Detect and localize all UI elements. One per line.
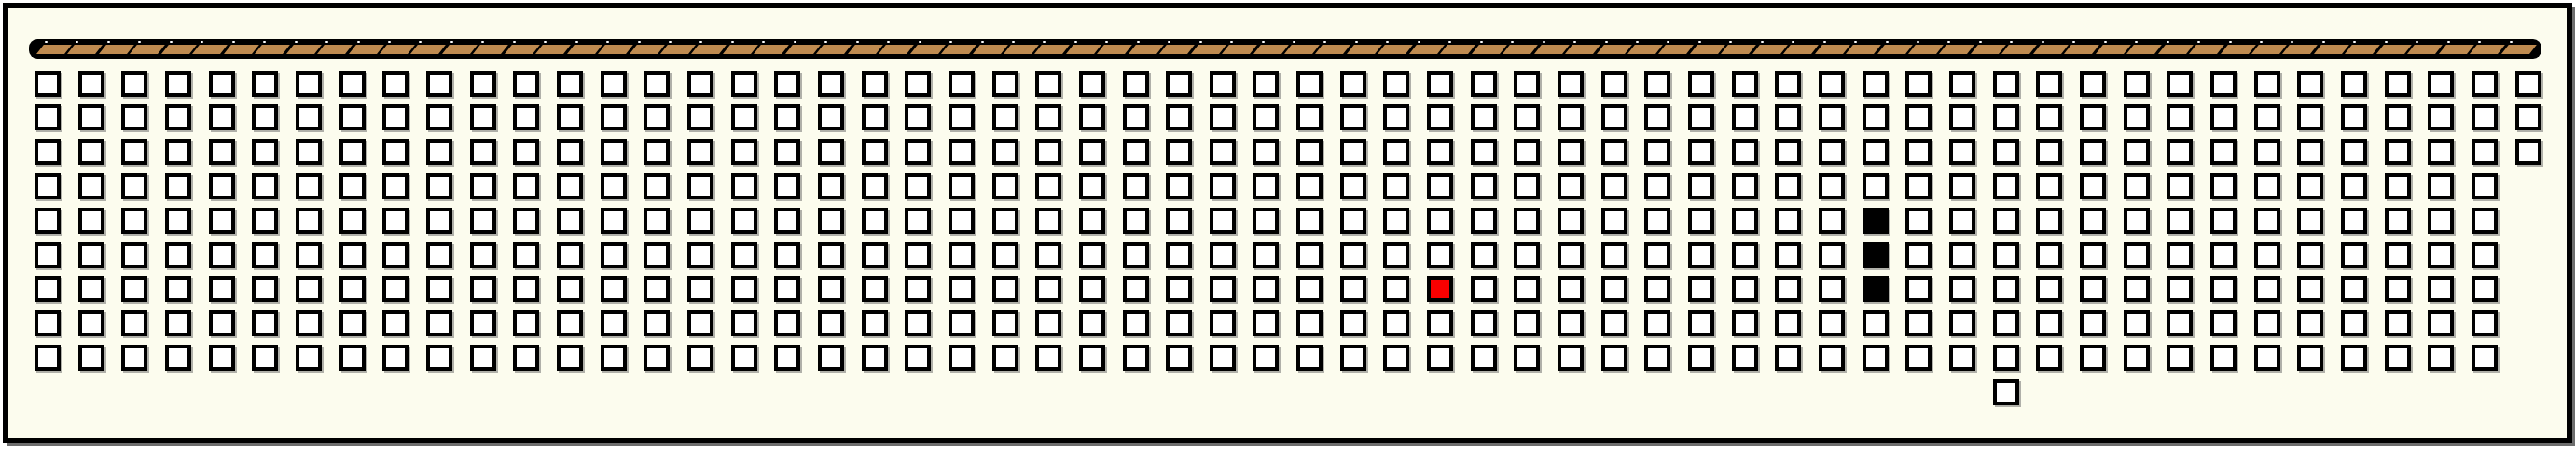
grid-cell[interactable] [2385, 310, 2411, 336]
grid-cell[interactable] [121, 276, 147, 302]
grid-cell[interactable] [1035, 139, 1061, 165]
grid-cell[interactable] [2428, 173, 2454, 199]
grid-cell[interactable] [2428, 276, 2454, 302]
grid-cell[interactable] [1166, 71, 1192, 97]
grid-cell[interactable] [862, 310, 888, 336]
grid-cell[interactable] [470, 345, 496, 371]
grid-cell[interactable] [2254, 276, 2280, 302]
grid-cell[interactable] [1819, 276, 1845, 302]
grid-cell[interactable] [774, 71, 800, 97]
grid-cell[interactable] [949, 139, 975, 165]
grid-cell[interactable] [687, 104, 713, 130]
grid-cell[interactable] [1253, 242, 1279, 268]
grid-cell[interactable] [2428, 104, 2454, 130]
grid-cell[interactable] [426, 276, 452, 302]
grid-cell[interactable] [862, 345, 888, 371]
grid-cell[interactable] [601, 173, 627, 199]
grid-cell[interactable] [687, 71, 713, 97]
grid-cell[interactable] [2472, 208, 2498, 234]
grid-cell[interactable] [687, 173, 713, 199]
grid-cell[interactable] [1732, 139, 1758, 165]
grid-cell[interactable] [470, 310, 496, 336]
grid-cell[interactable] [1123, 71, 1149, 97]
grid-cell[interactable] [2385, 242, 2411, 268]
grid-cell[interactable] [949, 173, 975, 199]
grid-cell[interactable] [1427, 310, 1453, 336]
grid-cell[interactable] [862, 276, 888, 302]
grid-cell[interactable] [601, 71, 627, 97]
grid-cell[interactable] [1558, 139, 1584, 165]
grid-cell[interactable] [1166, 276, 1192, 302]
grid-cell[interactable] [470, 276, 496, 302]
grid-cell[interactable] [2472, 276, 2498, 302]
grid-cell[interactable] [1514, 242, 1540, 268]
grid-cell[interactable] [1644, 310, 1670, 336]
grid-cell[interactable] [1775, 71, 1801, 97]
grid-cell[interactable] [1123, 242, 1149, 268]
grid-cell[interactable] [165, 276, 191, 302]
grid-cell[interactable] [1905, 345, 1932, 371]
grid-cell[interactable] [557, 276, 583, 302]
grid-cell[interactable] [2124, 345, 2150, 371]
grid-cell[interactable] [1471, 208, 1497, 234]
grid-cell[interactable] [209, 242, 235, 268]
grid-cell[interactable] [1644, 208, 1670, 234]
grid-cell[interactable] [949, 242, 975, 268]
grid-cell[interactable] [1210, 242, 1236, 268]
grid-cell[interactable] [1775, 139, 1801, 165]
grid-cell[interactable] [2472, 104, 2498, 130]
grid-cell[interactable] [905, 242, 931, 268]
grid-cell[interactable] [165, 345, 191, 371]
grid-cell[interactable] [1905, 104, 1932, 130]
grid-cell[interactable] [1079, 139, 1105, 165]
grid-cell[interactable] [252, 71, 278, 97]
grid-cell[interactable] [601, 276, 627, 302]
grid-cell[interactable] [2124, 242, 2150, 268]
grid-cell[interactable] [1905, 173, 1932, 199]
grid-cell[interactable] [2472, 139, 2498, 165]
grid-cell[interactable] [1340, 310, 1366, 336]
grid-cell[interactable] [818, 139, 844, 165]
grid-cell[interactable] [121, 104, 147, 130]
grid-cell[interactable] [1210, 310, 1236, 336]
grid-cell[interactable] [1514, 71, 1540, 97]
grid-cell[interactable] [1949, 208, 1975, 234]
grid-cell[interactable] [165, 242, 191, 268]
grid-cell[interactable] [862, 104, 888, 130]
grid-cell[interactable] [382, 173, 409, 199]
grid-cell[interactable] [1123, 208, 1149, 234]
grid-cell[interactable] [2341, 173, 2367, 199]
grid-cell[interactable] [1601, 173, 1627, 199]
grid-cell[interactable] [2472, 310, 2498, 336]
grid-cell[interactable] [1035, 276, 1061, 302]
grid-cell[interactable] [1949, 173, 1975, 199]
grid-cell[interactable] [2167, 71, 2193, 97]
grid-cell[interactable] [1514, 276, 1540, 302]
grid-cell[interactable] [252, 173, 278, 199]
grid-cell[interactable] [1688, 71, 1714, 97]
grid-cell[interactable] [165, 173, 191, 199]
grid-cell[interactable] [2254, 242, 2280, 268]
grid-cell[interactable] [382, 310, 409, 336]
grid-cell[interactable] [818, 104, 844, 130]
grid-cell[interactable] [992, 345, 1018, 371]
grid-cell[interactable] [1732, 208, 1758, 234]
grid-cell[interactable] [818, 276, 844, 302]
grid-cell[interactable] [78, 310, 104, 336]
grid-cell[interactable] [2124, 173, 2150, 199]
grid-cell[interactable] [426, 173, 452, 199]
grid-cell[interactable] [1166, 139, 1192, 165]
grid-cell[interactable] [1340, 208, 1366, 234]
grid-cell[interactable] [2428, 208, 2454, 234]
grid-cell[interactable] [1383, 276, 1409, 302]
grid-cell[interactable] [2080, 276, 2106, 302]
grid-cell[interactable] [1514, 310, 1540, 336]
grid-cell[interactable] [1863, 345, 1889, 371]
grid-cell[interactable] [426, 139, 452, 165]
grid-cell-black-filled[interactable] [1863, 208, 1889, 234]
grid-cell[interactable] [1949, 242, 1975, 268]
grid-cell[interactable] [35, 139, 61, 165]
grid-cell[interactable] [1993, 276, 2019, 302]
grid-cell[interactable] [1601, 345, 1627, 371]
grid-cell[interactable] [426, 71, 452, 97]
grid-cell[interactable] [1383, 71, 1409, 97]
grid-cell[interactable] [1993, 208, 2019, 234]
grid-cell[interactable] [78, 173, 104, 199]
grid-cell[interactable] [1601, 208, 1627, 234]
grid-cell[interactable] [78, 208, 104, 234]
grid-cell[interactable] [296, 208, 322, 234]
grid-cell[interactable] [1123, 310, 1149, 336]
grid-cell[interactable] [2254, 139, 2280, 165]
grid-cell[interactable] [209, 310, 235, 336]
grid-cell[interactable] [382, 242, 409, 268]
grid-cell[interactable] [2210, 139, 2237, 165]
grid-cell[interactable] [601, 208, 627, 234]
grid-cell[interactable] [1819, 139, 1845, 165]
grid-cell[interactable] [1993, 71, 2019, 97]
grid-cell[interactable] [557, 139, 583, 165]
grid-cell[interactable] [1035, 310, 1061, 336]
grid-cell[interactable] [78, 104, 104, 130]
grid-cell[interactable] [774, 104, 800, 130]
grid-cell[interactable] [78, 345, 104, 371]
grid-cell[interactable] [2385, 345, 2411, 371]
grid-cell[interactable] [818, 208, 844, 234]
grid-cell[interactable] [818, 345, 844, 371]
grid-cell[interactable] [774, 310, 800, 336]
grid-cell[interactable] [862, 139, 888, 165]
grid-cell[interactable] [905, 276, 931, 302]
grid-cell[interactable] [1732, 104, 1758, 130]
grid-cell[interactable] [1079, 310, 1105, 336]
grid-cell[interactable] [992, 104, 1018, 130]
grid-cell[interactable] [2385, 173, 2411, 199]
grid-cell[interactable] [1035, 345, 1061, 371]
grid-cell[interactable] [426, 310, 452, 336]
grid-cell[interactable] [1079, 242, 1105, 268]
grid-cell[interactable] [1296, 104, 1323, 130]
grid-cell[interactable] [165, 139, 191, 165]
grid-cell[interactable] [1949, 276, 1975, 302]
grid-cell[interactable] [296, 242, 322, 268]
grid-cell[interactable] [1340, 242, 1366, 268]
grid-cell[interactable] [2297, 173, 2323, 199]
grid-cell[interactable] [1863, 173, 1889, 199]
grid-cell[interactable] [382, 208, 409, 234]
grid-cell[interactable] [339, 104, 366, 130]
grid-cell[interactable] [1558, 276, 1584, 302]
grid-cell[interactable] [731, 71, 757, 97]
grid-cell[interactable] [1514, 208, 1540, 234]
grid-cell[interactable] [2210, 276, 2237, 302]
grid-cell[interactable] [252, 242, 278, 268]
grid-cell[interactable] [1340, 71, 1366, 97]
grid-cell[interactable] [862, 71, 888, 97]
grid-cell[interactable] [687, 276, 713, 302]
grid-cell[interactable] [1601, 139, 1627, 165]
grid-cell[interactable] [1296, 71, 1323, 97]
grid-cell[interactable] [2080, 104, 2106, 130]
grid-cell[interactable] [774, 208, 800, 234]
grid-cell[interactable] [1210, 173, 1236, 199]
grid-cell[interactable] [1688, 173, 1714, 199]
grid-cell[interactable] [252, 345, 278, 371]
grid-cell[interactable] [78, 139, 104, 165]
grid-cell[interactable] [644, 345, 670, 371]
grid-cell[interactable] [1949, 104, 1975, 130]
grid-cell[interactable] [1079, 104, 1105, 130]
grid-cell[interactable] [1340, 139, 1366, 165]
grid-cell[interactable] [339, 208, 366, 234]
grid-cell[interactable] [513, 310, 539, 336]
grid-cell[interactable] [35, 276, 61, 302]
grid-cell[interactable] [2428, 242, 2454, 268]
grid-cell[interactable] [992, 139, 1018, 165]
grid-cell[interactable] [949, 104, 975, 130]
grid-cell[interactable] [1123, 173, 1149, 199]
grid-cell[interactable] [2167, 310, 2193, 336]
grid-cell[interactable] [209, 276, 235, 302]
grid-cell[interactable] [774, 345, 800, 371]
grid-cell[interactable] [992, 276, 1018, 302]
grid-cell[interactable] [2036, 139, 2062, 165]
grid-cell[interactable] [1819, 208, 1845, 234]
grid-cell[interactable] [1166, 242, 1192, 268]
grid-cell[interactable] [949, 71, 975, 97]
grid-cell[interactable] [687, 345, 713, 371]
grid-cell[interactable] [121, 173, 147, 199]
grid-cell[interactable] [1471, 173, 1497, 199]
grid-cell[interactable] [426, 208, 452, 234]
grid-cell[interactable] [1949, 139, 1975, 165]
grid-cell[interactable] [470, 173, 496, 199]
grid-cell[interactable] [1427, 208, 1453, 234]
grid-cell[interactable] [2080, 345, 2106, 371]
grid-cell[interactable] [296, 173, 322, 199]
grid-cell[interactable] [35, 208, 61, 234]
grid-cell[interactable] [2167, 345, 2193, 371]
grid-cell[interactable] [905, 139, 931, 165]
grid-cell[interactable] [2036, 71, 2062, 97]
grid-cell[interactable] [2254, 208, 2280, 234]
grid-cell[interactable] [687, 208, 713, 234]
grid-cell[interactable] [1644, 242, 1670, 268]
grid-cell[interactable] [1253, 208, 1279, 234]
grid-cell[interactable] [513, 208, 539, 234]
grid-cell[interactable] [252, 139, 278, 165]
grid-cell[interactable] [513, 173, 539, 199]
grid-cell[interactable] [470, 104, 496, 130]
grid-cell[interactable] [2210, 242, 2237, 268]
grid-cell[interactable] [339, 139, 366, 165]
grid-cell[interactable] [1775, 242, 1801, 268]
grid-cell[interactable] [905, 104, 931, 130]
grid-cell[interactable] [905, 310, 931, 336]
grid-cell[interactable] [339, 173, 366, 199]
grid-cell[interactable] [1732, 310, 1758, 336]
grid-cell[interactable] [1296, 173, 1323, 199]
grid-cell[interactable] [2080, 208, 2106, 234]
grid-cell[interactable] [2124, 310, 2150, 336]
grid-cell[interactable] [1993, 173, 2019, 199]
grid-cell[interactable] [2341, 310, 2367, 336]
grid-cell[interactable] [862, 173, 888, 199]
grid-cell[interactable] [1514, 104, 1540, 130]
grid-cell[interactable] [992, 208, 1018, 234]
grid-cell[interactable] [2036, 276, 2062, 302]
grid-cell[interactable] [1775, 310, 1801, 336]
grid-cell[interactable] [2124, 276, 2150, 302]
grid-cell[interactable] [1514, 345, 1540, 371]
grid-cell[interactable] [1819, 104, 1845, 130]
grid-cell[interactable] [1601, 276, 1627, 302]
grid-cell[interactable] [470, 139, 496, 165]
grid-cell[interactable] [1993, 104, 2019, 130]
grid-cell[interactable] [1601, 310, 1627, 336]
grid-cell[interactable] [1035, 173, 1061, 199]
grid-cell[interactable] [1383, 345, 1409, 371]
grid-cell[interactable] [1644, 345, 1670, 371]
grid-cell[interactable] [2297, 208, 2323, 234]
grid-cell[interactable] [1296, 139, 1323, 165]
grid-cell[interactable] [2341, 242, 2367, 268]
grid-cell[interactable] [644, 208, 670, 234]
grid-cell[interactable] [513, 139, 539, 165]
grid-cell[interactable] [1383, 242, 1409, 268]
grid-cell[interactable] [1253, 276, 1279, 302]
grid-cell[interactable] [1123, 345, 1149, 371]
grid-cell[interactable] [2297, 139, 2323, 165]
grid-cell[interactable] [121, 242, 147, 268]
grid-cell[interactable] [1079, 71, 1105, 97]
grid-cell[interactable] [949, 345, 975, 371]
grid-cell[interactable] [1644, 276, 1670, 302]
grid-cell[interactable] [1471, 242, 1497, 268]
grid-cell[interactable] [209, 173, 235, 199]
grid-cell[interactable] [1905, 139, 1932, 165]
grid-cell[interactable] [209, 345, 235, 371]
grid-cell[interactable] [1993, 242, 2019, 268]
grid-cell[interactable] [731, 242, 757, 268]
grid-cell[interactable] [2385, 104, 2411, 130]
grid-cell[interactable] [1340, 173, 1366, 199]
grid-cell[interactable] [1601, 242, 1627, 268]
grid-cell[interactable] [601, 345, 627, 371]
grid-cell[interactable] [252, 104, 278, 130]
grid-cell[interactable] [601, 310, 627, 336]
grid-cell[interactable] [774, 276, 800, 302]
grid-cell[interactable] [296, 345, 322, 371]
grid-cell[interactable] [2472, 173, 2498, 199]
grid-cell[interactable] [1863, 71, 1889, 97]
grid-cell[interactable] [1949, 345, 1975, 371]
grid-cell[interactable] [818, 310, 844, 336]
grid-cell[interactable] [731, 310, 757, 336]
grid-cell[interactable] [1644, 173, 1670, 199]
grid-cell[interactable] [470, 71, 496, 97]
grid-cell[interactable] [2036, 345, 2062, 371]
grid-cell[interactable] [35, 345, 61, 371]
grid-cell[interactable] [1688, 104, 1714, 130]
grid-cell[interactable] [731, 345, 757, 371]
grid-cell[interactable] [1427, 104, 1453, 130]
grid-cell[interactable] [1471, 139, 1497, 165]
grid-cell[interactable] [1253, 139, 1279, 165]
grid-cell[interactable] [905, 173, 931, 199]
grid-cell[interactable] [2515, 139, 2541, 165]
grid-cell[interactable] [35, 71, 61, 97]
grid-cell[interactable] [2385, 276, 2411, 302]
grid-cell[interactable] [1993, 139, 2019, 165]
grid-cell[interactable] [252, 310, 278, 336]
grid-cell[interactable] [1427, 71, 1453, 97]
grid-cell[interactable] [1123, 104, 1149, 130]
grid-cell[interactable] [1210, 71, 1236, 97]
grid-cell[interactable] [1210, 139, 1236, 165]
grid-cell[interactable] [2428, 139, 2454, 165]
grid-cell[interactable] [296, 71, 322, 97]
grid-cell[interactable] [1819, 242, 1845, 268]
grid-cell[interactable] [1166, 345, 1192, 371]
grid-cell[interactable] [339, 276, 366, 302]
grid-cell[interactable] [1775, 104, 1801, 130]
grid-cell[interactable] [992, 242, 1018, 268]
grid-cell[interactable] [1123, 139, 1149, 165]
grid-cell[interactable] [2297, 345, 2323, 371]
grid-cell[interactable] [78, 242, 104, 268]
grid-cell[interactable] [1253, 310, 1279, 336]
grid-cell[interactable] [339, 310, 366, 336]
grid-cell[interactable] [601, 242, 627, 268]
grid-cell[interactable] [339, 71, 366, 97]
grid-cell[interactable] [2385, 139, 2411, 165]
grid-cell[interactable] [1644, 139, 1670, 165]
grid-cell[interactable] [862, 208, 888, 234]
grid-cell[interactable] [862, 242, 888, 268]
grid-cell[interactable] [513, 104, 539, 130]
grid-cell[interactable] [601, 104, 627, 130]
grid-cell[interactable] [296, 104, 322, 130]
grid-cell[interactable] [1210, 345, 1236, 371]
grid-cell[interactable] [426, 104, 452, 130]
grid-cell[interactable] [2080, 310, 2106, 336]
grid-cell[interactable] [992, 71, 1018, 97]
